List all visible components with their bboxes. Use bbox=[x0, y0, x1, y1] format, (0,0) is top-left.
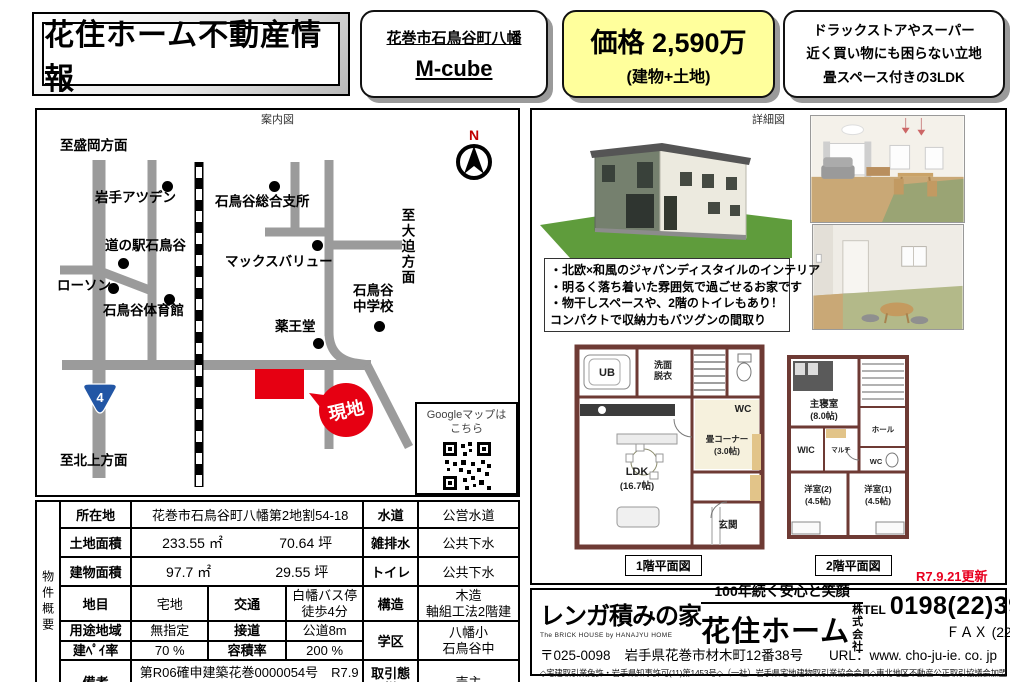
north-compass-icon: N bbox=[458, 127, 490, 178]
feature-box: ドラックストアやスーパー 近く買い物にも困らない立地 畳スペース付きの3LDK bbox=[783, 10, 1005, 98]
map-caption: 案内図 bbox=[257, 111, 298, 127]
far-label: 容積率 bbox=[208, 641, 285, 661]
room-label-tatami: 畳コーナー bbox=[706, 434, 749, 444]
company-slogan: 100年続く安心と笑顔 bbox=[701, 581, 863, 604]
map-label-michinoeki: 道の駅石鳥谷 bbox=[105, 238, 186, 254]
guide-map-panel: 案内図 現地 N bbox=[35, 108, 520, 497]
map-label-maxvalu: マックスバリュー bbox=[225, 254, 333, 270]
zip-code: 〒025-0098 bbox=[540, 648, 611, 663]
price-main: 価格 2,590万 bbox=[590, 21, 746, 60]
feature-line: ドラックストアやスーパー bbox=[813, 19, 974, 43]
map-label-lawson: ローソン bbox=[57, 278, 111, 294]
floor1-caption: 1階平面図 bbox=[625, 555, 702, 576]
district-value: 八幡小石鳥谷中 bbox=[418, 621, 519, 660]
map-label-gym: 石鳥谷体育館 bbox=[103, 303, 184, 319]
sales-point: ・明るく落ち着いた雰囲気で過ごせるお家です bbox=[550, 279, 784, 296]
room-label-ldk: LDK bbox=[626, 466, 649, 478]
qr-code[interactable] bbox=[441, 440, 493, 492]
water-label: 水道 bbox=[363, 501, 418, 528]
page-title: 花住ホーム不動産情報 bbox=[44, 10, 338, 98]
building-area-tsubo: 29.55 坪 bbox=[275, 562, 328, 582]
drain-value: 公共下水 bbox=[418, 528, 519, 557]
brand-name: レンガ積みの家 bbox=[540, 596, 701, 631]
land-area-m2: 233.55 ㎡ bbox=[162, 533, 223, 553]
room-label-master-size: (8.0帖) bbox=[810, 410, 838, 421]
zone-label: 用途地域 bbox=[60, 621, 131, 641]
sales-point: ・北欧×和風のジャパンディスタイルのインテリア bbox=[550, 262, 784, 279]
notes-label: 備考 bbox=[60, 660, 131, 682]
map-label-atsuden: 岩手アツデン bbox=[95, 190, 176, 206]
map-label-chugakko-line2: 中学校 bbox=[353, 299, 394, 315]
interior-photo-tatami bbox=[812, 224, 964, 330]
sales-point: ・物干しスペースや、2階のトイレもあり！ bbox=[550, 295, 784, 312]
toilet-label: トイレ bbox=[363, 557, 418, 586]
google-map-text-line2: こちら bbox=[417, 422, 516, 436]
table-row: 土地面積 233.55 ㎡ 70.64 坪 雑排水 公共下水 bbox=[36, 528, 519, 557]
table-row: 用途地域 無指定 接道 公道8m 学区 八幡小石鳥谷中 bbox=[36, 621, 519, 641]
floor2-caption: 2階平面図 bbox=[815, 555, 892, 576]
water-value: 公営水道 bbox=[418, 501, 519, 528]
room-label-west2-size: (4.5帖) bbox=[805, 496, 831, 506]
fax-number: ＦＡＸ (22) 3061 bbox=[863, 622, 1010, 642]
room-label-west1: 洋室(1) bbox=[864, 484, 892, 494]
company-url[interactable]: URL：www. cho-ju-ie. co. jp bbox=[829, 644, 997, 664]
room-label-wic: WIC bbox=[797, 445, 815, 455]
far-value: 200 % bbox=[286, 641, 363, 661]
location-label: 所在地 bbox=[60, 501, 131, 528]
price-box: 価格 2,590万 (建物+土地) bbox=[562, 10, 775, 98]
room-label-hall: ホール bbox=[872, 425, 895, 434]
coverage-label: 建ﾍﾟｲ率 bbox=[60, 641, 131, 661]
map-dot bbox=[374, 321, 385, 332]
table-row: 建物面積 97.7 ㎡ 29.55 坪 トイレ 公共下水 bbox=[36, 557, 519, 586]
road-label: 接道 bbox=[208, 621, 285, 641]
toilet-value: 公共下水 bbox=[418, 557, 519, 586]
updated-date: R7.9.21更新 bbox=[916, 566, 988, 585]
contact-block: TEL0198(22)3940 ＦＡＸ (22) 3061 bbox=[863, 592, 1010, 642]
coverage-value: 70 % bbox=[131, 641, 208, 661]
company-block: 100年続く安心と笑顔 花住ホーム 株式 会社 bbox=[701, 581, 863, 652]
route-4-number: 4 bbox=[96, 390, 104, 405]
map-label-chugakko-line1: 石鳥谷 bbox=[353, 283, 394, 299]
title-frame: 花住ホーム不動産情報 bbox=[32, 12, 350, 96]
map-label-chugakko: 石鳥谷 中学校 bbox=[353, 283, 394, 314]
land-area-label: 土地面積 bbox=[60, 528, 131, 557]
land-category-label: 地目 bbox=[60, 586, 131, 621]
brand-block: レンガ積みの家 The BRICK HOUSE by HANAJYU HOME bbox=[540, 596, 701, 639]
map-dot bbox=[313, 338, 324, 349]
tel-label: TEL bbox=[863, 603, 886, 617]
map-label-kitakami: 至北上方面 bbox=[60, 453, 128, 469]
license-text: ◇宅建取引業免許・岩手県知事許可(11)第1453号◇（一社）岩手県宅地建物取引… bbox=[540, 667, 997, 679]
structure-label: 構造 bbox=[363, 586, 418, 621]
room-label-ldk-size: (16.7帖) bbox=[620, 480, 654, 492]
room-label-multi: マルチ bbox=[831, 446, 851, 454]
product-name: M-cube bbox=[416, 56, 493, 82]
zone-value: 無指定 bbox=[131, 621, 208, 641]
brand-subtitle: The BRICK HOUSE by HANAJYU HOME bbox=[540, 632, 701, 639]
sales-points-box: ・北欧×和風のジャパンディスタイルのインテリア ・明るく落ち着いた雰囲気で過ごせ… bbox=[544, 258, 790, 332]
site-rectangle bbox=[255, 369, 304, 399]
room-label-west1-size: (4.5帖) bbox=[865, 496, 891, 506]
table-row: 備考 第R06確申建築花巻0000054号 R7.9月完成 取引態様 売主 bbox=[36, 660, 519, 682]
map-dot bbox=[269, 181, 280, 192]
room-label-wc-1f: WC bbox=[735, 404, 752, 415]
map-label-osako: 至大迫方面 bbox=[399, 208, 415, 286]
map-label-morioka: 至盛岡方面 bbox=[60, 138, 128, 154]
deal-type-label: 取引態様 bbox=[363, 660, 418, 682]
room-label-master: 主寝室 bbox=[810, 398, 839, 410]
company-info-box: レンガ積みの家 The BRICK HOUSE by HANAJYU HOME … bbox=[530, 588, 1007, 676]
property-location: 花巻市石鳥谷町八幡 bbox=[386, 27, 521, 48]
google-map-text-line1: Googleマップは bbox=[417, 408, 516, 422]
tel-number: 0198(22)3940 bbox=[890, 592, 1010, 620]
map-label-shisho: 石鳥谷総合支所 bbox=[215, 194, 310, 210]
table-row: 地目 宅地 交通 白幡バス停徒歩4分 構造 木造軸組工法2階建 bbox=[36, 586, 519, 621]
room-label-wash-1: 洗面 bbox=[654, 359, 672, 370]
land-area-tsubo: 70.64 坪 bbox=[279, 533, 332, 553]
compass-n-label: N bbox=[469, 127, 479, 143]
sales-point: コンパクトで収納力もバツグンの間取り bbox=[550, 312, 784, 329]
price-sub: (建物+土地) bbox=[626, 63, 710, 87]
room-label-west2: 洋室(2) bbox=[804, 484, 832, 494]
deal-type-value: 売主 bbox=[418, 660, 519, 682]
property-name-box: 花巻市石鳥谷町八幡 M-cube bbox=[360, 10, 548, 98]
traffic-value: 白幡バス停徒歩4分 bbox=[286, 586, 363, 621]
road-value: 公道8m bbox=[286, 621, 363, 641]
room-label-tatami-size: (3.0帖) bbox=[714, 446, 740, 456]
company-address: 岩手県花巻市材木町12番38号 bbox=[625, 648, 804, 663]
route-4-shield-icon: 4 bbox=[84, 384, 117, 413]
room-label-wc-2f: WC bbox=[870, 457, 883, 466]
district-label: 学区 bbox=[363, 621, 418, 660]
google-map-box: Googleマップは こちら bbox=[415, 402, 518, 495]
building-area-m2: 97.7 ㎡ bbox=[166, 562, 211, 582]
floor-plan-1f: UB 洗面 脱衣 WC 畳コーナー (3.0帖) LDK (16.7帖) 玄関 bbox=[562, 342, 777, 554]
feature-line: 畳スペース付きの3LDK bbox=[823, 66, 965, 90]
traffic-label: 交通 bbox=[208, 586, 285, 621]
room-label-entrance: 玄関 bbox=[718, 519, 737, 531]
location-value: 花巻市石鳥谷町八幡第2地割54-18 bbox=[131, 501, 363, 528]
building-area-label: 建物面積 bbox=[60, 557, 131, 586]
detail-panel: 詳細図 bbox=[530, 108, 1007, 585]
detail-caption: 詳細図 bbox=[748, 111, 789, 127]
room-label-wash-2: 脱衣 bbox=[654, 370, 672, 381]
flyer-page: 花住ホーム不動産情報 花巻市石鳥谷町八幡 M-cube 価格 2,590万 (建… bbox=[0, 0, 1010, 682]
structure-value: 木造軸組工法2階建 bbox=[418, 586, 519, 621]
map-label-yakuodo: 薬王堂 bbox=[275, 319, 316, 335]
land-category-value: 宅地 bbox=[131, 586, 208, 621]
map-dot bbox=[312, 240, 323, 251]
room-label-ub: UB bbox=[599, 367, 615, 379]
floor-plan-2f: 主寝室 (8.0帖) WIC マルチ ホール WC 洋室(2) (4.5帖) 洋… bbox=[784, 352, 912, 544]
notes-value: 第R06確申建築花巻0000054号 R7.9月完成 bbox=[131, 660, 363, 682]
feature-line: 近く買い物にも困らない立地 bbox=[806, 42, 982, 66]
interior-photo-ldk bbox=[810, 115, 965, 223]
map-dot bbox=[118, 258, 129, 269]
company-suffix-1: 株式 bbox=[852, 604, 863, 628]
table-side-label: 物件概要 bbox=[36, 501, 60, 682]
house-exterior-render bbox=[540, 120, 792, 260]
property-overview-table: 物件概要 所在地 花巻市石鳥谷町八幡第2地割54-18 水道 公営水道 土地面積… bbox=[35, 500, 520, 682]
drain-label: 雑排水 bbox=[363, 528, 418, 557]
table-row: 物件概要 所在地 花巻市石鳥谷町八幡第2地割54-18 水道 公営水道 bbox=[36, 501, 519, 528]
